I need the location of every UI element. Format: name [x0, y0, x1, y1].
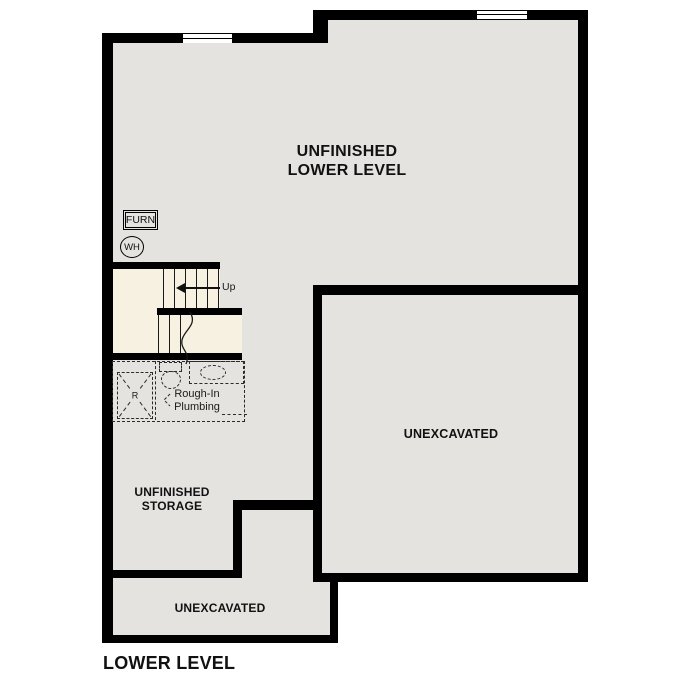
window-symbol-top-left [183, 34, 232, 43]
stair-landing-floor [113, 308, 157, 315]
stair-tread [169, 315, 170, 353]
room-label-unfinished-storage: UNFINISHED STORAGE [134, 485, 209, 513]
wall-unexcavated-bottom [313, 573, 588, 582]
window-symbol-top-right [477, 11, 527, 19]
wall-storage-right [233, 500, 242, 578]
wall-right [578, 10, 588, 582]
water-heater-symbol: WH [120, 236, 144, 258]
wall-stair-bottom [108, 353, 242, 360]
wall-stair-top [111, 262, 220, 269]
rough-in-label: Rough-In Plumbing [174, 388, 220, 414]
wall-corridor-top [233, 500, 322, 510]
up-arrow-line [183, 287, 220, 289]
room-label-line1: UNFINISHED [288, 142, 407, 161]
room-label-unexcavated-right: UNEXCAVATED [404, 427, 499, 441]
room-label-unfinished-lower-level: UNFINISHED LOWER LEVEL [288, 142, 407, 180]
wall-top-right [313, 10, 588, 20]
stair-tread [174, 269, 175, 308]
room-label-line2: LOWER LEVEL [288, 161, 407, 180]
storage-label-line2: STORAGE [134, 499, 209, 513]
rough-in-divider [155, 361, 156, 420]
wall-storage-bottom [102, 570, 242, 578]
furnace-label: FURN [125, 212, 156, 228]
stair-tread [163, 269, 164, 308]
storage-label-line1: UNFINISHED [134, 485, 209, 499]
window-mullion [183, 38, 232, 39]
up-arrow-head [176, 283, 185, 293]
wall-bottom [102, 635, 338, 643]
stair-break-line [176, 310, 200, 366]
stairs-up-label: Up [222, 281, 235, 293]
plan-title: LOWER LEVEL [103, 653, 235, 674]
wall-unexcavated-left [313, 285, 322, 582]
wall-left [102, 33, 113, 643]
tub-symbol: R [117, 372, 153, 419]
rough-in-pointer [162, 393, 172, 407]
rough-in-label-line1: Rough-In [174, 388, 220, 401]
window-mullion [477, 14, 527, 15]
rough-in-tick [222, 414, 247, 415]
stair-tread [158, 315, 159, 353]
wall-unexcavated-top [313, 285, 588, 295]
sink-basin-symbol [200, 365, 226, 380]
tub-drain-mark: R [131, 390, 140, 400]
room-label-unexcavated-bottom: UNEXCAVATED [175, 601, 266, 615]
floor-plan: Up FURN WH R Rough-In Plumbing UNFINISHE… [0, 0, 687, 687]
wall-strip-right [330, 578, 338, 643]
rough-in-label-line2: Plumbing [174, 401, 220, 414]
furnace-symbol: FURN [123, 210, 158, 230]
